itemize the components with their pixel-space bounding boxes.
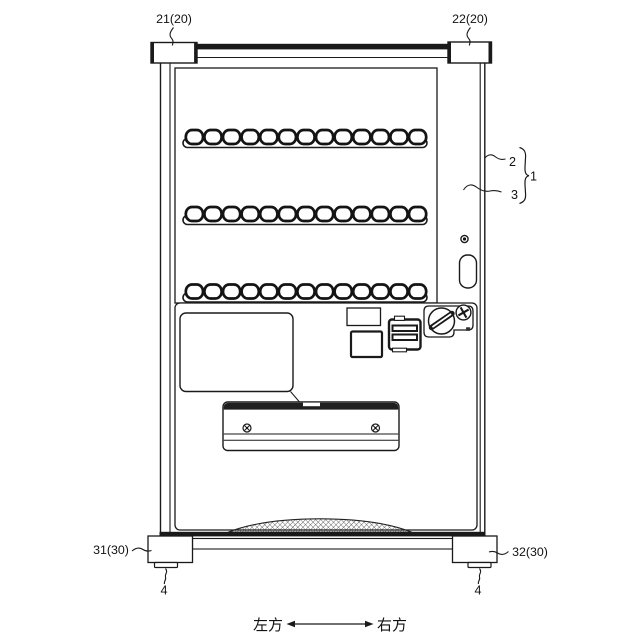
bill-slot-upper bbox=[393, 326, 418, 332]
shelf-cell bbox=[316, 130, 333, 144]
price-display bbox=[347, 308, 381, 326]
shelf-cell bbox=[297, 285, 314, 299]
shelf-cell bbox=[353, 285, 370, 299]
label-outer-door-panel: 2 bbox=[509, 155, 516, 169]
shelf-row-1 bbox=[183, 130, 427, 148]
leg-block bbox=[453, 536, 498, 563]
direction-indicator: 左方 右方 bbox=[253, 617, 407, 634]
shelf-cell bbox=[390, 130, 407, 144]
bill-slot-lower bbox=[393, 335, 418, 341]
port-screw-right bbox=[372, 424, 380, 432]
shelf-cell bbox=[186, 285, 203, 299]
direction-arrowhead-left bbox=[287, 621, 296, 628]
shelf-cell bbox=[242, 207, 259, 221]
selection-button bbox=[351, 332, 382, 358]
shelf-cell bbox=[279, 130, 296, 144]
shelf-cell bbox=[260, 285, 277, 299]
shelf-cell bbox=[279, 207, 296, 221]
label-machine-body: 1 bbox=[530, 170, 537, 184]
port-band-notch bbox=[303, 403, 320, 407]
product-window bbox=[180, 313, 293, 392]
shelf-cell bbox=[279, 285, 296, 299]
leg-block bbox=[148, 536, 193, 563]
shelf-cell bbox=[260, 130, 277, 144]
patent-figure-vending-machine: 21(20) 22(20) bbox=[0, 0, 640, 640]
cabinet-top bbox=[197, 44, 448, 58]
shelf-cell bbox=[204, 207, 221, 221]
shelf-cell bbox=[372, 207, 389, 221]
port-screw-left bbox=[243, 424, 251, 432]
top-edge-band bbox=[197, 44, 448, 50]
hanger-bracket-left bbox=[151, 43, 197, 64]
leader-line-2 bbox=[485, 155, 506, 160]
shelf-cell bbox=[353, 130, 370, 144]
shelf-cell bbox=[335, 285, 352, 299]
bottom-edge-band bbox=[160, 532, 486, 537]
shelf-cell bbox=[223, 285, 240, 299]
delivery-port bbox=[223, 402, 399, 451]
label-bracket-right: 22(20) bbox=[452, 12, 488, 26]
shelf-cell bbox=[223, 207, 240, 221]
shelf-cell bbox=[186, 207, 203, 221]
validator-top-tab bbox=[395, 316, 405, 320]
shelf-cell bbox=[204, 285, 221, 299]
label-bracket-left: 21(20) bbox=[156, 12, 192, 26]
shelf-cell bbox=[372, 130, 389, 144]
shelf-cell bbox=[297, 130, 314, 144]
brace-group-1 bbox=[520, 148, 530, 204]
leader-line-4-left bbox=[164, 569, 166, 585]
label-inner-door-panel: 3 bbox=[511, 188, 518, 202]
shelf-cell bbox=[353, 207, 370, 221]
door-handle bbox=[460, 255, 477, 288]
shelf-cell bbox=[409, 130, 426, 144]
coin-panel-screw bbox=[466, 327, 470, 331]
shelf-cell bbox=[316, 207, 333, 221]
shelf-cell bbox=[409, 285, 426, 299]
shelf-cell bbox=[297, 207, 314, 221]
shelf-cell bbox=[242, 285, 259, 299]
label-foot-right: 4 bbox=[474, 584, 481, 598]
shelf-cell bbox=[260, 207, 277, 221]
foot-pad bbox=[155, 563, 178, 568]
shelf-cell bbox=[409, 207, 426, 221]
validator-bottom-tab bbox=[393, 348, 407, 352]
direction-right-text: 右方 bbox=[377, 617, 407, 634]
shelf-cell bbox=[335, 130, 352, 144]
direction-left-text: 左方 bbox=[253, 617, 283, 634]
door-upper-window bbox=[175, 68, 437, 303]
foot-pad bbox=[468, 563, 491, 568]
leader-line-3 bbox=[464, 185, 502, 192]
direction-arrowhead-right bbox=[365, 621, 374, 628]
shelf-row-2 bbox=[183, 207, 427, 225]
shelf-cell bbox=[372, 285, 389, 299]
shelf-cell bbox=[204, 130, 221, 144]
shelf-cell bbox=[242, 130, 259, 144]
shelf-cell bbox=[186, 130, 203, 144]
shelf-cell bbox=[316, 285, 333, 299]
shelf-cell bbox=[390, 285, 407, 299]
bill-validator bbox=[389, 316, 421, 352]
hinge-strip bbox=[460, 235, 477, 288]
label-leg-left: 31(30) bbox=[93, 543, 129, 557]
base-rail bbox=[193, 539, 456, 550]
leg-left bbox=[148, 536, 193, 568]
shelf-cell bbox=[390, 207, 407, 221]
label-leg-right: 32(30) bbox=[512, 545, 548, 559]
lock-dot-inner bbox=[463, 237, 466, 240]
shelf-cell bbox=[223, 130, 240, 144]
shelf-row-3 bbox=[183, 285, 427, 303]
label-foot-left: 4 bbox=[160, 584, 167, 598]
shelf-cell bbox=[335, 207, 352, 221]
figure-canvas: 21(20) 22(20) bbox=[0, 0, 640, 640]
leader-line-4-right bbox=[478, 569, 480, 585]
